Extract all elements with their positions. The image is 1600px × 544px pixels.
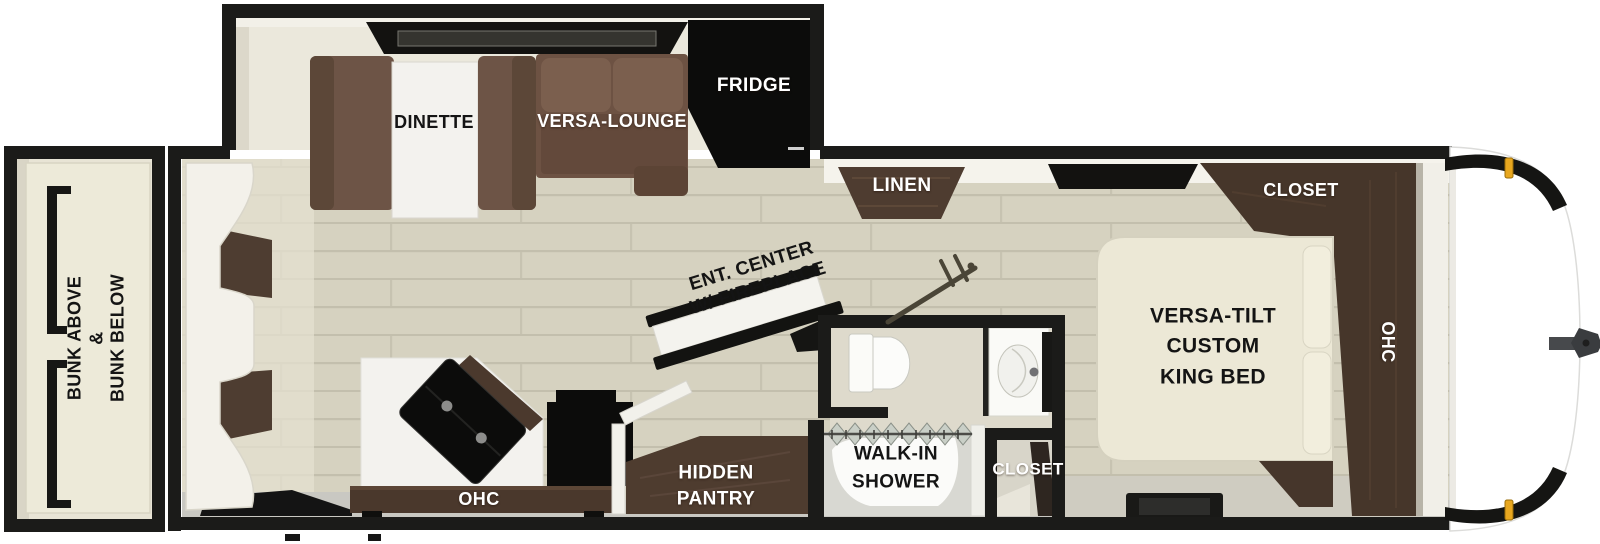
- walk-in-shower-label: WALK-IN SHOWER: [852, 440, 940, 495]
- bedroom-window: [1048, 164, 1198, 189]
- hidden-pantry-label: HIDDEN PANTRY: [677, 460, 755, 511]
- bunk-label: BUNK ABOVE & BUNK BELOW: [65, 274, 130, 402]
- marker-light: [1505, 158, 1513, 178]
- fridge-label: FRIDGE: [717, 73, 791, 99]
- pillow: [1303, 352, 1331, 454]
- dinette-table: [392, 62, 478, 218]
- bathroom-mirror: [1042, 332, 1052, 412]
- stabilizer-marks: [285, 534, 381, 541]
- bedroom-ohc-label: OHC: [1376, 321, 1400, 362]
- kitchen-ohc-label: OHC: [458, 487, 499, 511]
- linen-label: LINEN: [873, 173, 932, 199]
- toilet-tank: [849, 334, 873, 392]
- front-cap: [1445, 147, 1600, 531]
- marker-light: [1505, 500, 1513, 520]
- versa-lounge-label: VERSA-LOUNGE: [537, 109, 687, 133]
- bath-closet-label: CLOSET: [992, 459, 1063, 482]
- floorplan-diagram: DINETTE VERSA-LOUNGE FRIDGE LINEN CLOSET…: [0, 0, 1600, 544]
- pillow: [1303, 246, 1331, 348]
- bedroom-closet-label: CLOSET: [1263, 178, 1338, 202]
- dinette-label: DINETTE: [394, 110, 474, 134]
- king-bed-label: VERSA-TILT CUSTOM KING BED: [1150, 301, 1276, 392]
- pantry-wall: [612, 424, 625, 514]
